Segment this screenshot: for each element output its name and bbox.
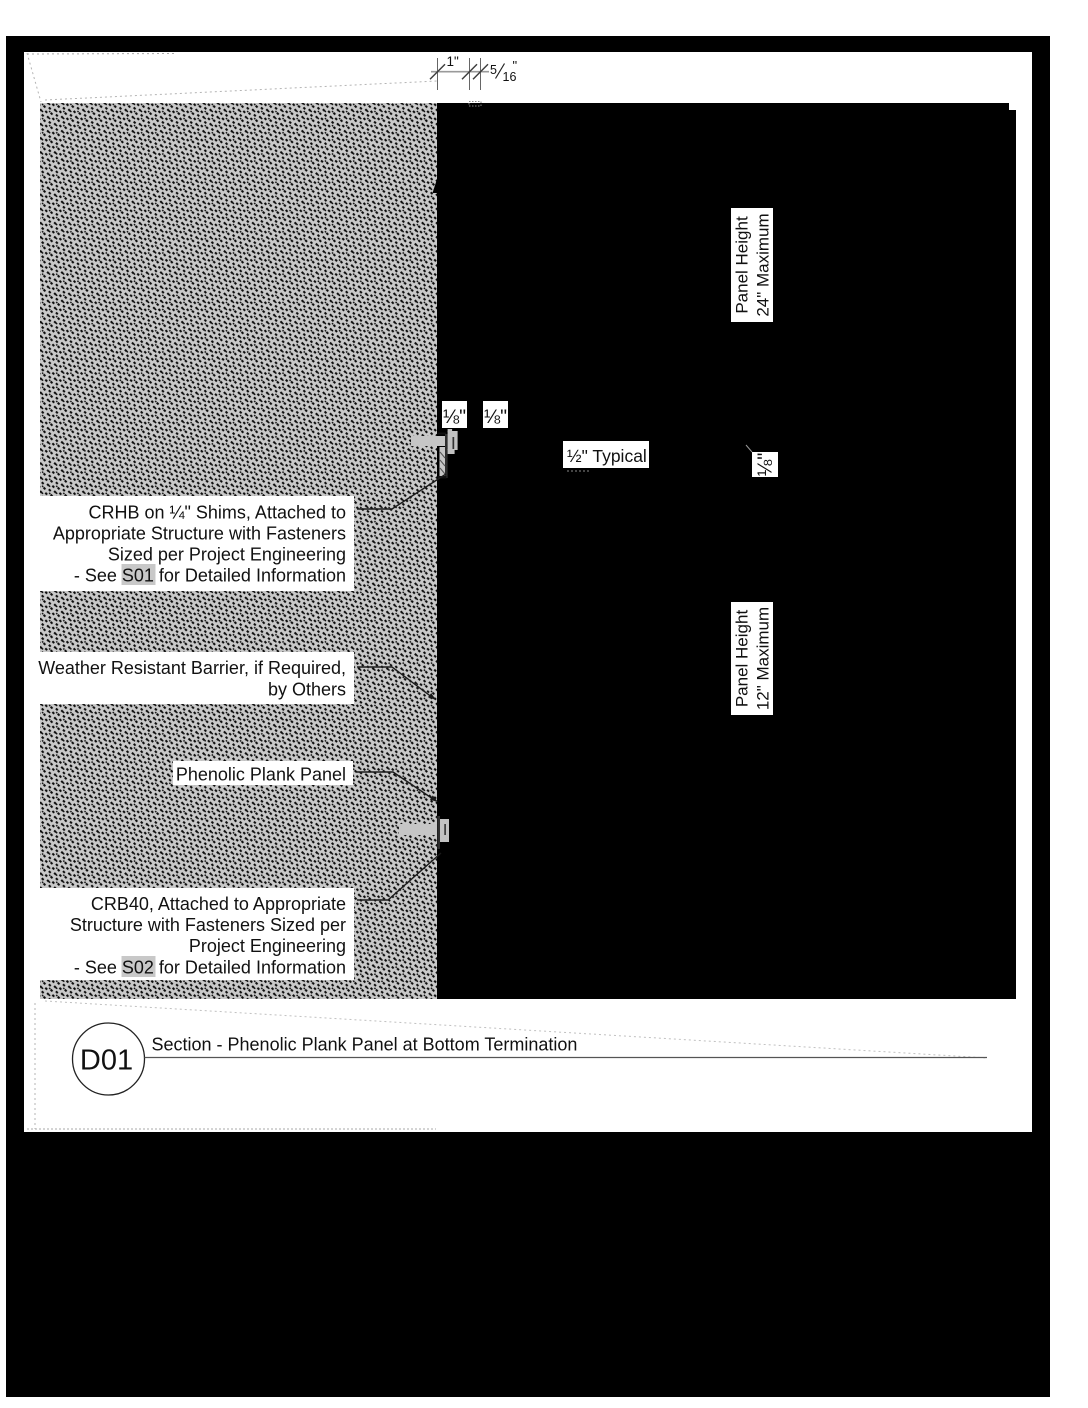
- svg-text:24" Maximum: 24" Maximum: [754, 213, 773, 316]
- svg-text:CRHB on ¼" Shims, Attached to: CRHB on ¼" Shims, Attached to: [88, 503, 346, 523]
- svg-text:- See S02 for Detailed Informa: - See S02 for Detailed Information: [74, 958, 346, 978]
- svg-text:D01: D01: [80, 1045, 133, 1077]
- svg-text:⅛": ⅛": [443, 406, 466, 428]
- svg-text:": ": [513, 58, 518, 73]
- svg-text:Panel Height: Panel Height: [733, 610, 752, 708]
- svg-text:Panel Height: Panel Height: [733, 216, 752, 314]
- svg-text:Weather Resistant Barrier, if: Weather Resistant Barrier, if Required,: [38, 658, 346, 678]
- svg-text:12" Maximum: 12" Maximum: [754, 607, 773, 710]
- svg-text:by Others: by Others: [268, 680, 346, 700]
- svg-text:Phenolic Plank Panel: Phenolic Plank Panel: [176, 765, 346, 785]
- svg-text:Appropriate Structure with Fas: Appropriate Structure with Fasteners: [53, 524, 346, 544]
- svg-text:Sized per Project Engineering: Sized per Project Engineering: [108, 545, 346, 565]
- svg-text:Project Engineering: Project Engineering: [189, 936, 346, 956]
- svg-text:⅛": ⅛": [755, 453, 777, 477]
- svg-text:Section - Phenolic Plank Panel: Section - Phenolic Plank Panel at Bottom…: [152, 1035, 578, 1055]
- svg-text:½" Typical: ½" Typical: [567, 446, 647, 466]
- svg-text:Structure with Fasteners Sized: Structure with Fasteners Sized per: [70, 915, 346, 935]
- svg-text:1": 1": [447, 54, 460, 69]
- svg-text:- See S01 for Detailed Informa: - See S01 for Detailed Information: [74, 566, 346, 586]
- svg-text:CRB40, Attached to Appropriate: CRB40, Attached to Appropriate: [91, 894, 346, 914]
- svg-text:5: 5: [490, 63, 497, 77]
- svg-text:⅛": ⅛": [484, 406, 507, 428]
